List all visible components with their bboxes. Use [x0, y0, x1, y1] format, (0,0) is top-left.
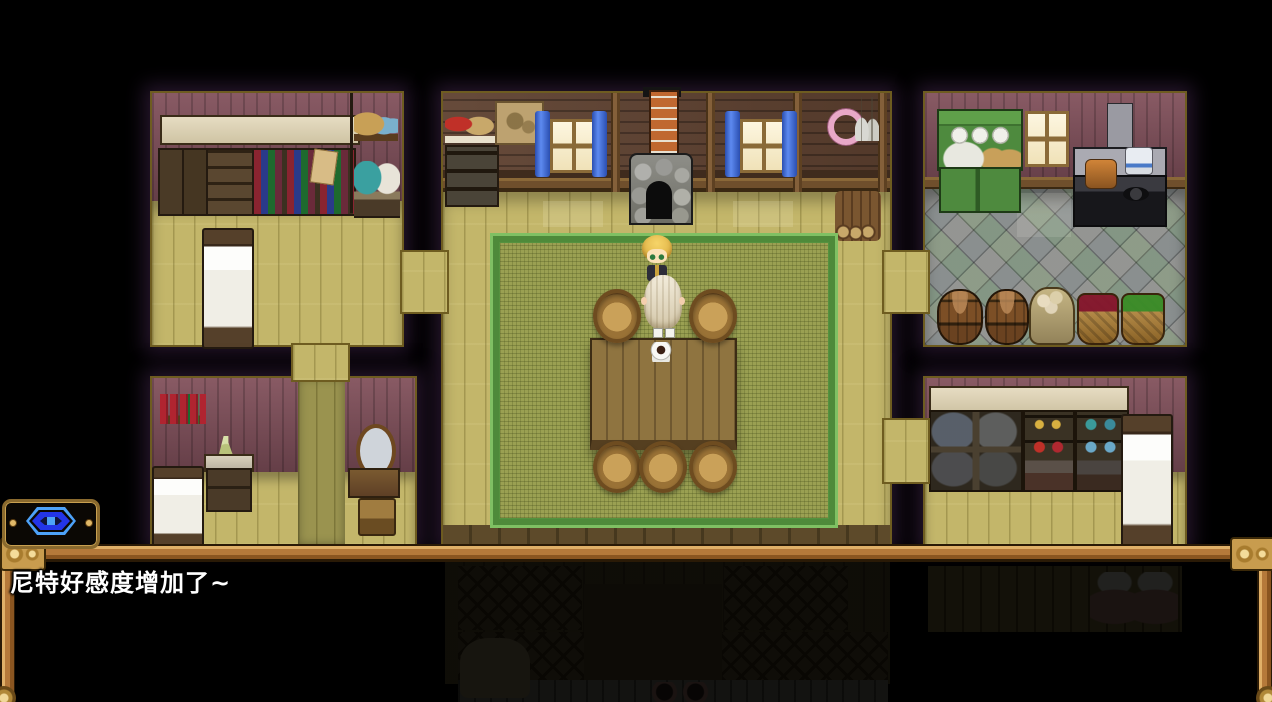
hanging-garlic [855, 97, 879, 141]
bed [1121, 414, 1173, 549]
shelf-gift-jug [445, 105, 495, 143]
chair [593, 289, 641, 343]
character-foot [665, 328, 675, 338]
stool [358, 498, 396, 536]
curtain [782, 111, 797, 177]
nightstand [204, 436, 250, 516]
character-face [647, 249, 667, 263]
chair [593, 441, 641, 493]
window-light [543, 201, 603, 227]
rivet [85, 519, 93, 527]
eye-icon-pupil [47, 517, 55, 525]
floor [152, 201, 402, 345]
silver-pot [1125, 147, 1153, 175]
support-beam [706, 93, 715, 192]
barrel [985, 289, 1029, 345]
support-beam [611, 93, 620, 192]
room-kitchen [925, 93, 1185, 345]
window-glass [550, 119, 598, 173]
window-glass [740, 119, 788, 173]
eye-button[interactable] [2, 499, 100, 549]
window-right [725, 113, 797, 175]
kitchen-window [1025, 111, 1069, 167]
character-sitting [641, 275, 685, 337]
room-bottom-right [925, 378, 1185, 545]
curtain [725, 111, 740, 177]
support-beam [878, 93, 887, 192]
stove [1073, 103, 1163, 223]
vanity-table [348, 468, 400, 498]
room-bottom-left [152, 378, 415, 545]
pinned-note [310, 148, 338, 185]
display-shelf [1023, 410, 1075, 492]
book-shelf [160, 394, 206, 424]
drawer-chest [206, 148, 254, 216]
hallway-strip [298, 378, 345, 545]
corridor [884, 420, 928, 482]
rivet [9, 519, 17, 527]
basket-greens [1121, 293, 1165, 345]
chair [639, 441, 687, 493]
bookshelf [252, 148, 356, 216]
curtain [592, 111, 607, 177]
hutch-cabinet [939, 167, 1021, 213]
window-light [733, 201, 793, 227]
curtain [535, 111, 550, 177]
chair [689, 441, 737, 493]
desk-gift-papers [354, 161, 400, 218]
wall-divider [350, 93, 353, 213]
fireplace-opening [646, 181, 672, 219]
nightstand-body [206, 468, 252, 512]
copper-pot [1085, 159, 1117, 189]
floor-edge [443, 525, 890, 545]
corridor [402, 252, 447, 312]
potato-sack [1029, 287, 1075, 345]
barrel [937, 289, 983, 345]
dim-overlay [0, 544, 1272, 702]
teacup [649, 342, 673, 362]
green-hutch [937, 109, 1019, 209]
cabinet [158, 148, 208, 216]
eye-icon [26, 507, 76, 535]
corridor [293, 345, 348, 380]
character-hand [641, 297, 647, 305]
window-light [1017, 193, 1071, 237]
chair [689, 289, 737, 343]
basket-berries [1077, 293, 1119, 345]
glass-cabinet [929, 410, 1023, 492]
counter-top [160, 115, 360, 145]
hutch-shelves [937, 109, 1023, 171]
jar-cabinet [445, 145, 499, 207]
game-viewport[interactable]: 尼特好感度增加了~ [0, 0, 1272, 702]
character-hair [644, 275, 682, 329]
basement-dim-area [0, 544, 1272, 702]
bed [202, 228, 254, 349]
woodpile [835, 191, 881, 241]
wall-shelf-sack-jars [354, 103, 398, 141]
character-hand [679, 297, 685, 305]
corridor [884, 252, 928, 312]
room-main-hall [443, 93, 890, 545]
stove-burner [1123, 187, 1149, 201]
character-foot [653, 328, 663, 338]
room-top-left [152, 93, 402, 345]
bed [152, 466, 204, 549]
window-left [535, 113, 607, 175]
